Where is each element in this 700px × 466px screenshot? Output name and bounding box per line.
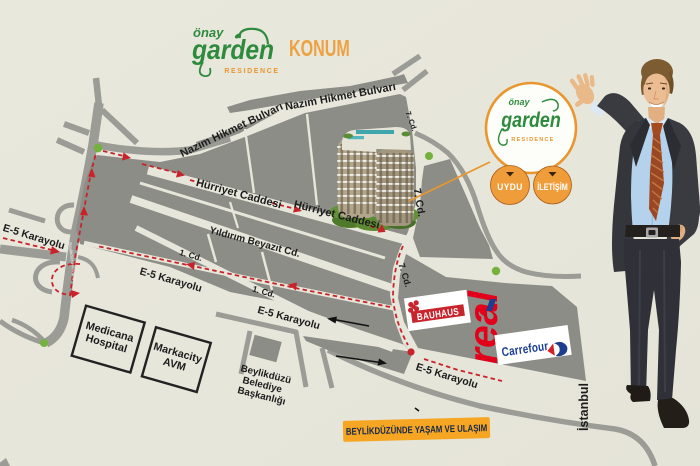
svg-text:UYDU: UYDU bbox=[497, 182, 522, 193]
svg-text:önay: önay bbox=[508, 97, 530, 107]
svg-text:İLETİŞİM: İLETİŞİM bbox=[537, 182, 568, 192]
svg-text:KONUM: KONUM bbox=[289, 36, 350, 61]
svg-text:RESIDENCE: RESIDENCE bbox=[224, 68, 279, 75]
svg-text:İstanbul: İstanbul bbox=[576, 383, 591, 431]
svg-text:RESIDENCE: RESIDENCE bbox=[511, 137, 554, 143]
svg-text:garden: garden bbox=[500, 109, 560, 133]
svg-text:garden: garden bbox=[191, 34, 274, 66]
